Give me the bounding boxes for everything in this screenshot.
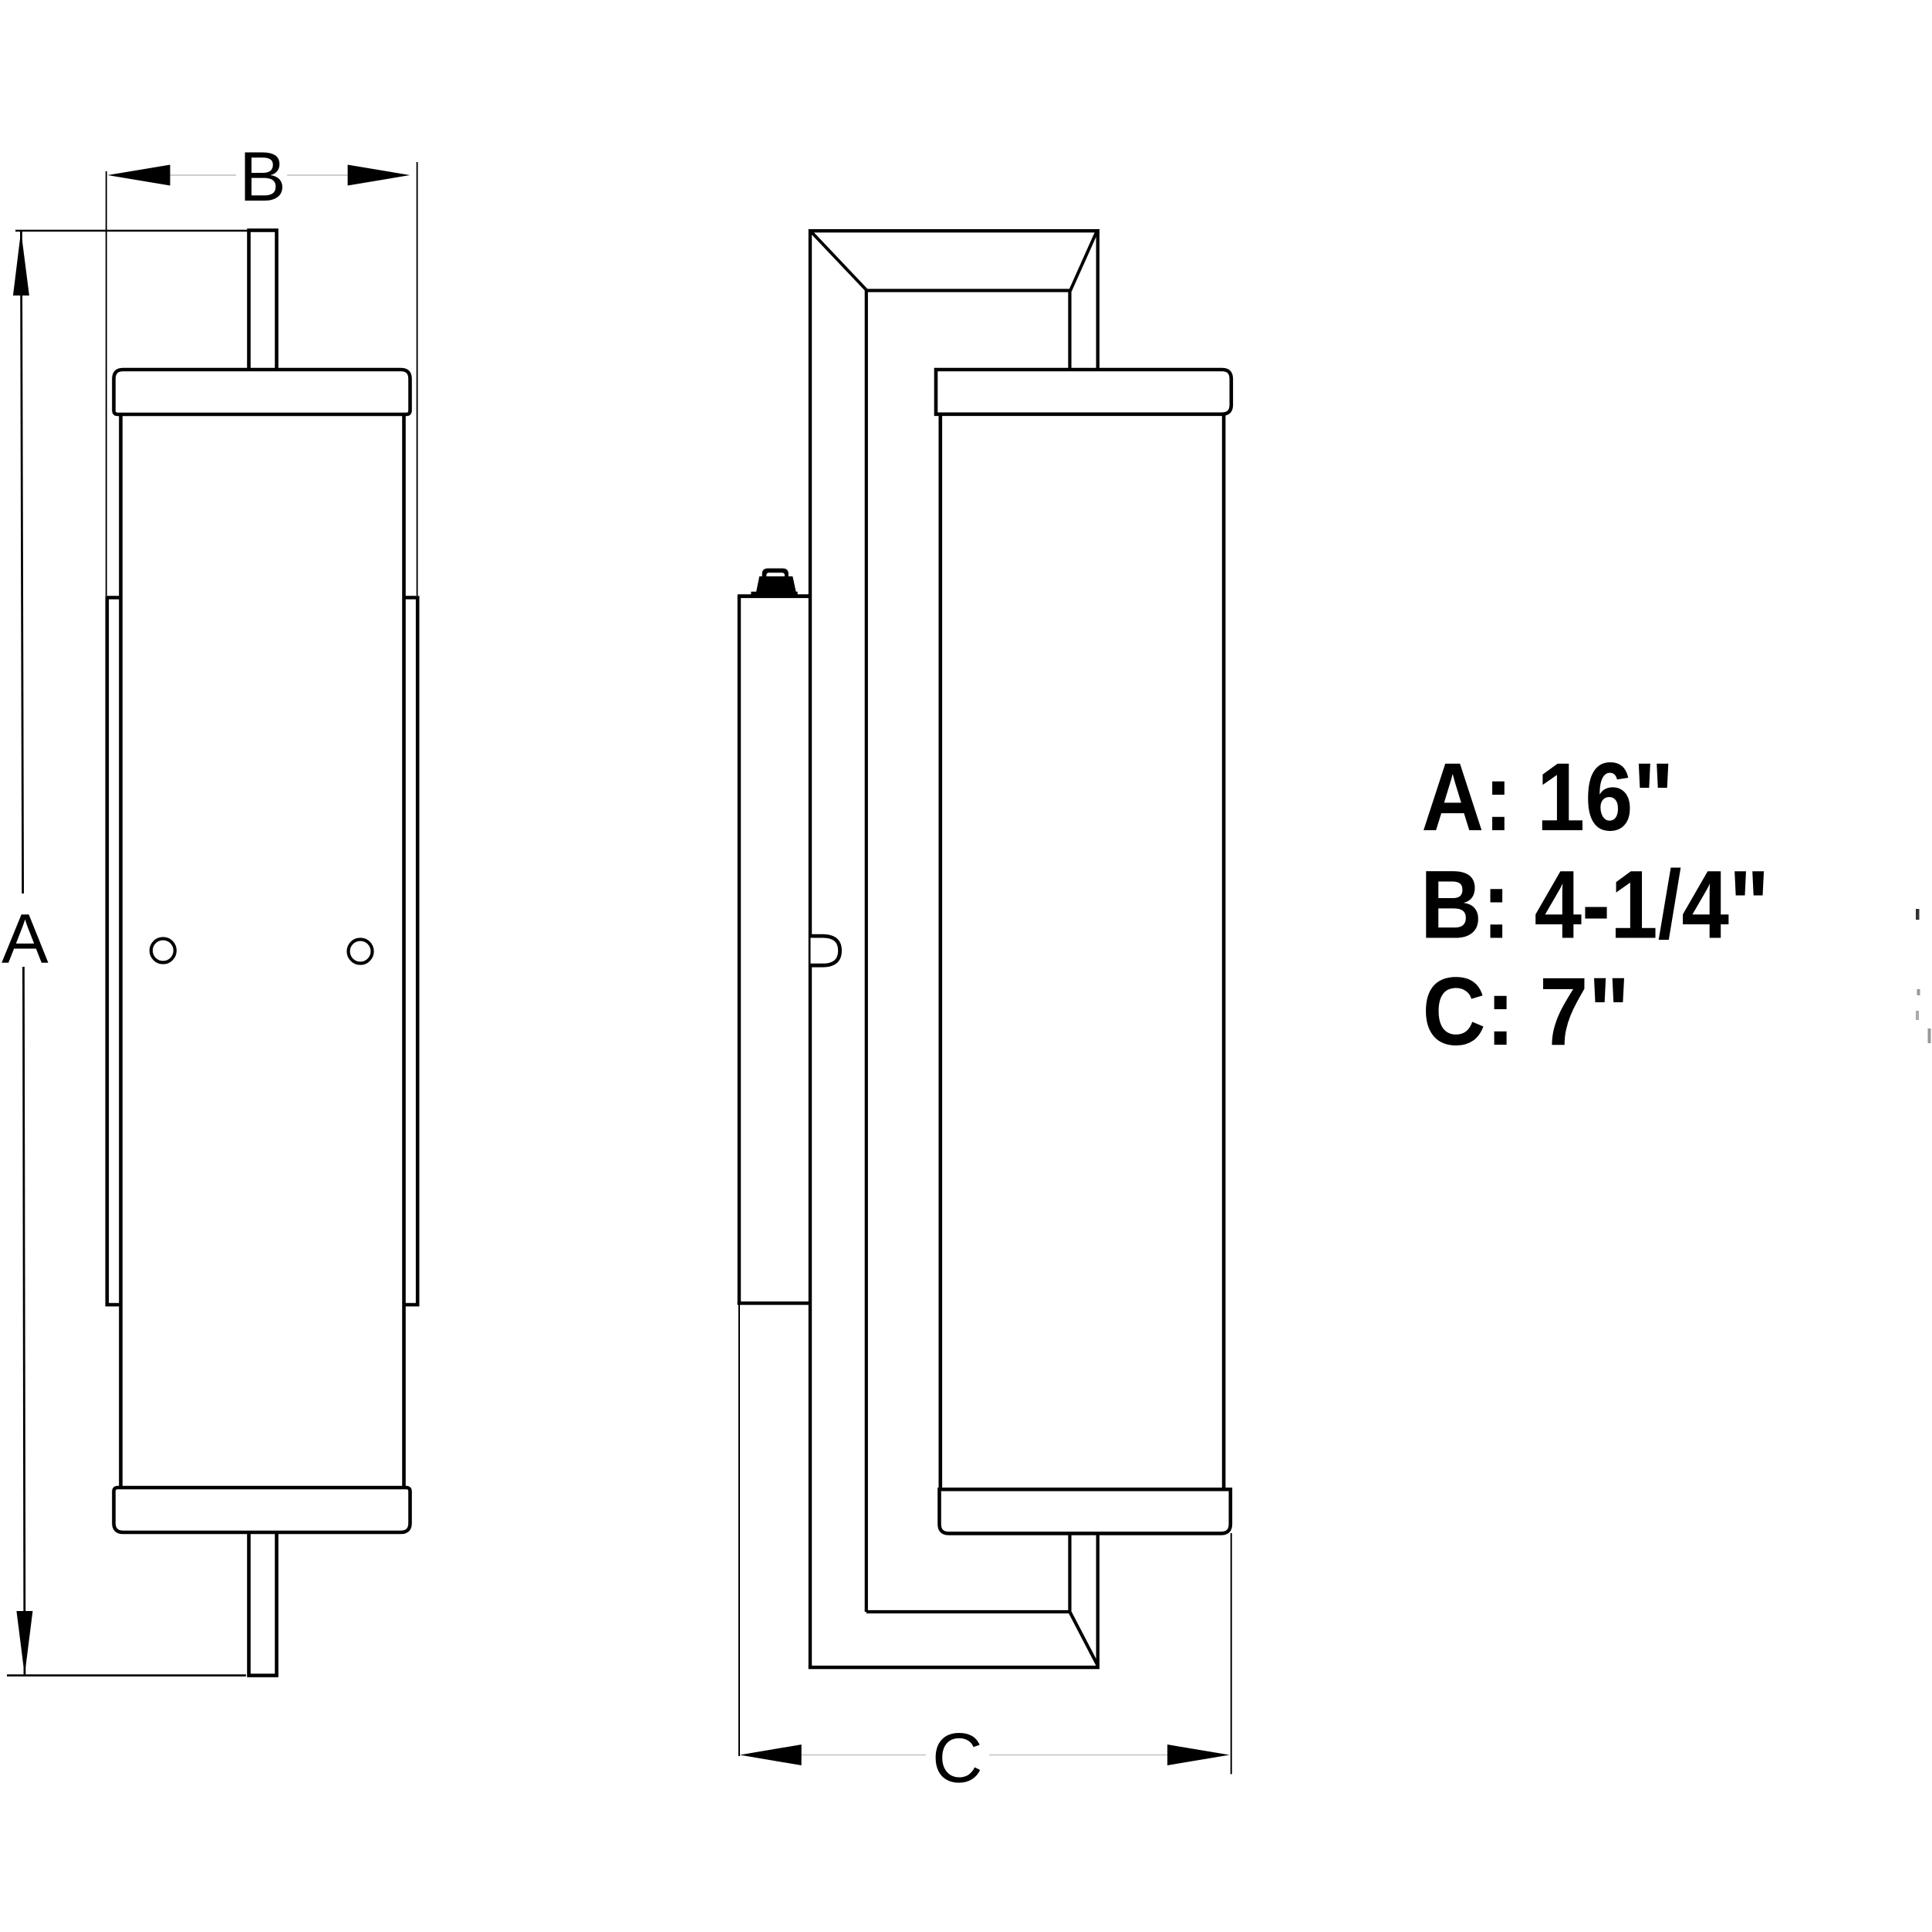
svg-text:A: 16": A: 16"	[1421, 745, 1674, 852]
svg-text:A: A	[2, 900, 49, 978]
svg-text:C: 7": C: 7"	[1422, 958, 1630, 1066]
svg-text:B: 4-1/4": B: 4-1/4"	[1420, 851, 1770, 959]
svg-text:C: C	[932, 1720, 983, 1798]
svg-text:B: B	[239, 138, 286, 216]
